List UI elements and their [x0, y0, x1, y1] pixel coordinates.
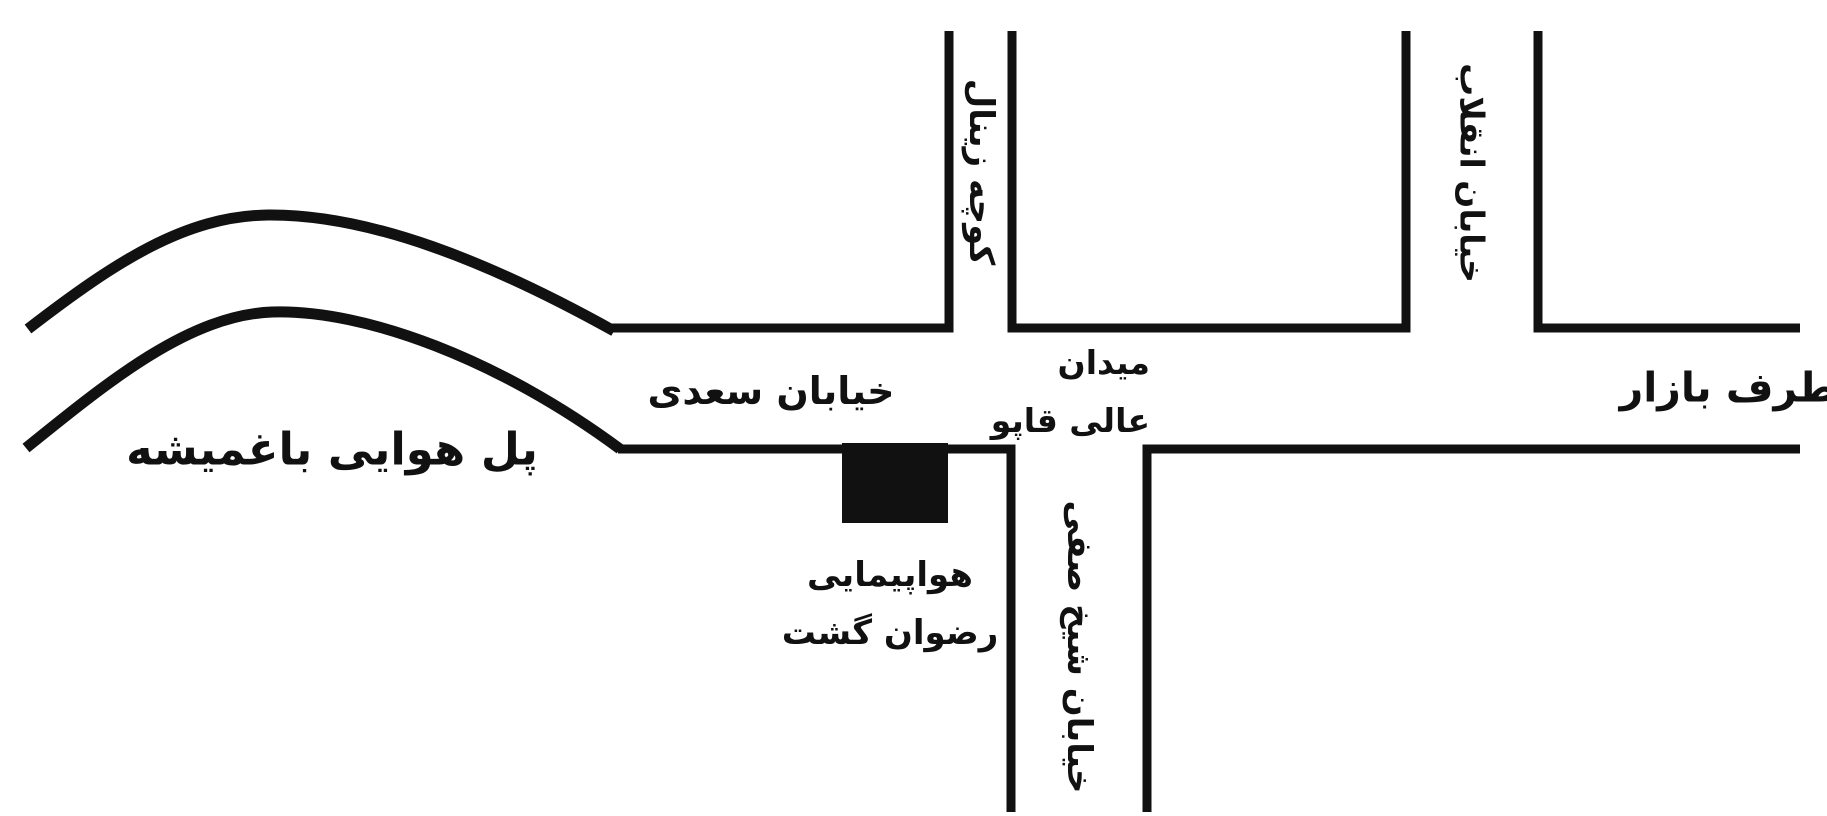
- road-network: [0, 0, 1827, 816]
- zeynal-alley-label: کوچه زینال: [964, 79, 998, 266]
- south-line-east-segment-and-sheikhsafi-east-wall: [1147, 449, 1800, 812]
- square-label-line2: عالی قاپو: [991, 392, 1150, 450]
- saadi-street-label: خیابان سعدی: [648, 372, 895, 410]
- sheikh-safi-street-label: خیابان شیخ صفی: [1062, 501, 1096, 794]
- agency-label-line1: هواپیمایی: [782, 546, 999, 604]
- aali-qapu-square-label: میدان عالی قاپو: [991, 334, 1150, 450]
- square-label-line1: میدان: [991, 334, 1150, 392]
- agency-label-line2: رضوان گشت: [782, 604, 999, 662]
- bridge-label: پل هوایی باغمیشه: [126, 427, 538, 472]
- north-line-east-segment: [1538, 31, 1800, 328]
- north-line-middle-segment: [1012, 31, 1406, 328]
- to-bazaar-label: بطرف بازار: [1620, 368, 1827, 409]
- enghelab-street-label: خیابان انقلاب: [1456, 63, 1489, 283]
- agency-building-marker: [842, 443, 948, 523]
- street-map: پل هوایی باغمیشه خیابان سعدی میدان عالی …: [0, 0, 1827, 816]
- agency-label: هواپیمایی رضوان گشت: [782, 546, 999, 662]
- saadi-north-line-and-zeynal-west-wall: [612, 31, 949, 328]
